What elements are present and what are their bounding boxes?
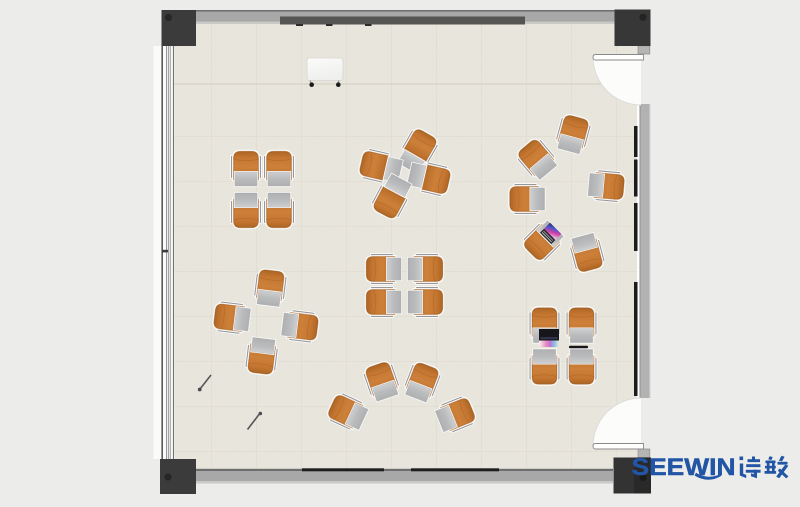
svg-text:SEEWIN: SEEWIN <box>632 454 736 481</box>
